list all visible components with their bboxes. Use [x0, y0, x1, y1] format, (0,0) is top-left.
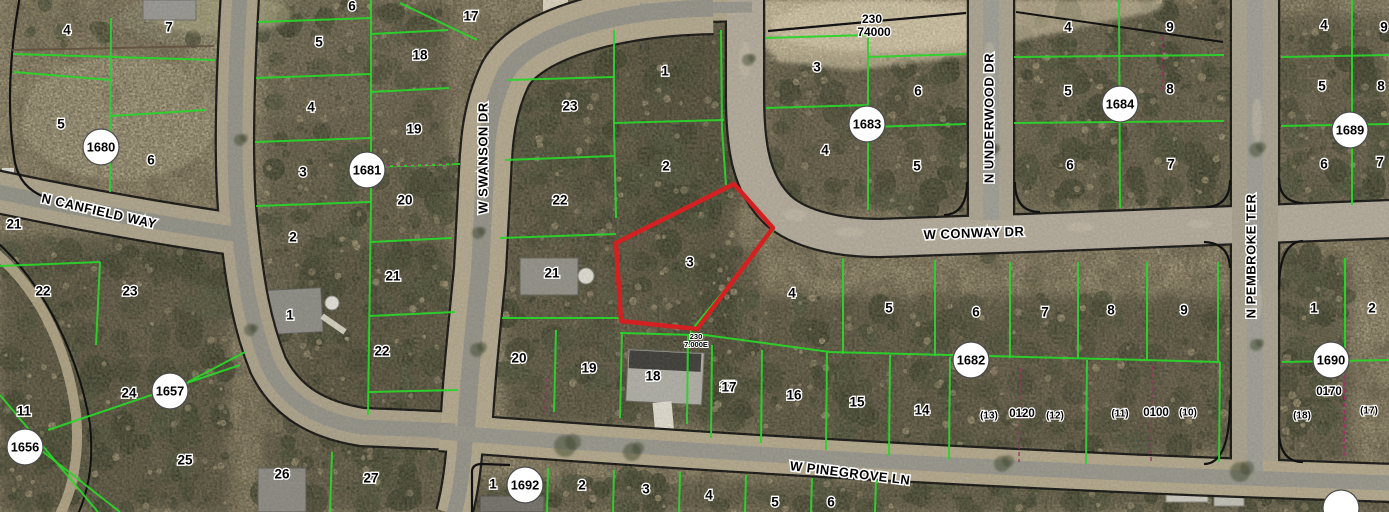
svg-text:14: 14	[914, 403, 930, 418]
svg-text:74000: 74000	[857, 25, 891, 39]
svg-text:6: 6	[147, 153, 155, 168]
svg-text:17: 17	[721, 380, 736, 395]
svg-text:(18): (18)	[1293, 410, 1311, 421]
svg-text:7.000E: 7.000E	[684, 340, 708, 349]
svg-text:9: 9	[1380, 20, 1388, 35]
svg-text:1684: 1684	[1106, 96, 1135, 111]
svg-text:1682: 1682	[957, 352, 985, 367]
svg-text:23: 23	[562, 99, 578, 114]
svg-text:1: 1	[1310, 301, 1318, 316]
svg-text:(13): (13)	[980, 410, 998, 421]
svg-text:(10): (10)	[1179, 407, 1197, 418]
svg-text:0100: 0100	[1143, 407, 1169, 419]
svg-text:1690: 1690	[1317, 352, 1345, 367]
svg-text:19: 19	[406, 122, 421, 137]
svg-text:20: 20	[511, 351, 526, 366]
svg-text:23: 23	[122, 284, 138, 299]
svg-text:15: 15	[849, 395, 865, 410]
svg-text:7: 7	[165, 20, 173, 35]
svg-text:6: 6	[972, 305, 980, 320]
svg-text:1: 1	[661, 64, 669, 79]
svg-text:(12): (12)	[1046, 410, 1064, 421]
svg-text:N PEMBROKE TER: N PEMBROKE TER	[1243, 194, 1258, 319]
svg-text:25: 25	[177, 453, 193, 468]
svg-text:3: 3	[299, 165, 307, 180]
svg-text:5: 5	[771, 495, 779, 510]
svg-text:19: 19	[581, 361, 596, 376]
svg-text:7: 7	[1167, 157, 1175, 172]
svg-text:1689: 1689	[1336, 122, 1364, 137]
svg-text:5: 5	[885, 301, 893, 316]
svg-text:20: 20	[397, 193, 412, 208]
svg-text:6: 6	[1320, 157, 1328, 172]
svg-text:22: 22	[552, 193, 567, 208]
svg-text:4: 4	[1320, 18, 1328, 33]
svg-text:18: 18	[645, 369, 661, 384]
svg-text:1683: 1683	[853, 116, 881, 131]
svg-text:4: 4	[788, 286, 796, 301]
svg-text:8: 8	[1166, 82, 1174, 97]
svg-text:27: 27	[363, 471, 378, 486]
svg-text:1680: 1680	[87, 139, 115, 154]
svg-text:1656: 1656	[11, 439, 39, 454]
svg-text:2: 2	[1368, 301, 1376, 316]
svg-text:W SWANSON DR: W SWANSON DR	[475, 102, 490, 214]
svg-text:2: 2	[289, 230, 297, 245]
svg-text:6: 6	[827, 495, 835, 510]
svg-text:0120: 0120	[1009, 408, 1035, 420]
svg-text:7: 7	[1041, 305, 1049, 320]
svg-text:230: 230	[862, 12, 882, 26]
svg-text:(17): (17)	[1360, 405, 1378, 416]
svg-text:3: 3	[686, 255, 694, 270]
svg-text:18: 18	[412, 48, 428, 63]
svg-text:4: 4	[307, 100, 315, 115]
svg-text:8: 8	[1107, 303, 1115, 318]
svg-text:22: 22	[35, 284, 50, 299]
svg-text:1681: 1681	[353, 162, 381, 177]
svg-text:1: 1	[286, 308, 294, 323]
svg-text:21: 21	[544, 266, 560, 281]
svg-text:7: 7	[1376, 155, 1384, 170]
svg-text:5: 5	[1318, 79, 1326, 94]
svg-text:4: 4	[63, 23, 71, 38]
svg-text:6: 6	[1066, 158, 1074, 173]
svg-text:9: 9	[1166, 20, 1174, 35]
svg-text:3: 3	[642, 482, 650, 497]
svg-text:11: 11	[17, 404, 32, 419]
svg-text:5: 5	[57, 117, 65, 132]
svg-text:4: 4	[1064, 20, 1072, 35]
svg-text:1: 1	[489, 477, 497, 492]
svg-text:26: 26	[274, 467, 290, 482]
svg-text:5: 5	[1064, 84, 1072, 99]
svg-text:9: 9	[1180, 303, 1188, 318]
svg-text:6: 6	[914, 84, 922, 99]
svg-text:3: 3	[813, 60, 821, 75]
svg-text:(11): (11)	[1111, 408, 1128, 419]
svg-text:5: 5	[315, 35, 323, 50]
svg-text:21: 21	[6, 217, 22, 232]
svg-text:5: 5	[913, 159, 921, 174]
svg-text:16: 16	[786, 388, 802, 403]
svg-text:24: 24	[121, 386, 137, 401]
svg-text:N UNDERWOOD DR: N UNDERWOOD DR	[981, 53, 996, 183]
svg-text:4: 4	[821, 143, 829, 158]
svg-text:1692: 1692	[511, 477, 539, 492]
svg-text:21: 21	[385, 269, 401, 284]
svg-text:4: 4	[705, 488, 713, 503]
svg-text:6: 6	[348, 0, 356, 14]
svg-text:2: 2	[578, 478, 586, 493]
svg-text:1657: 1657	[156, 383, 184, 398]
svg-text:22: 22	[374, 344, 389, 359]
svg-text:0170: 0170	[1316, 386, 1342, 398]
svg-text:8: 8	[1377, 79, 1385, 94]
svg-text:2: 2	[662, 159, 670, 174]
svg-text:17: 17	[463, 9, 478, 24]
